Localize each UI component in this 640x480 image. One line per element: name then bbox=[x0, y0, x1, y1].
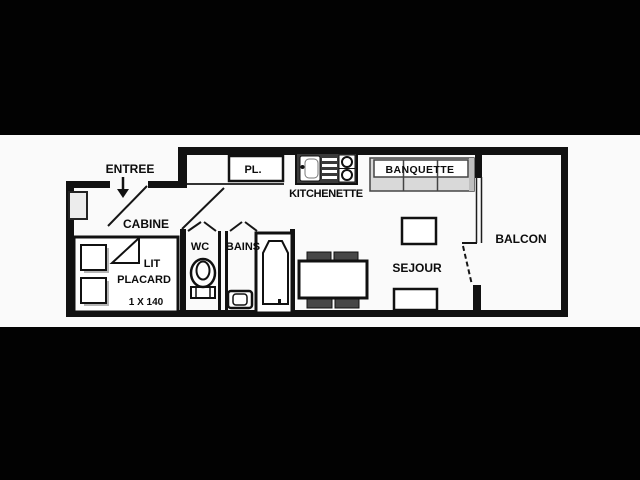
toilet-icon bbox=[191, 259, 215, 298]
drainer-stripe bbox=[322, 176, 337, 179]
hall-ledge-line bbox=[187, 183, 284, 185]
kitchenette-unit bbox=[296, 153, 357, 184]
drainer-stripe bbox=[322, 164, 337, 167]
bathtub-inner bbox=[263, 241, 288, 304]
kitchen-faucet bbox=[301, 165, 305, 169]
wall-cabine-wc bbox=[180, 229, 186, 310]
wall-wc-bains-left bbox=[218, 231, 221, 310]
label-placard-bed: PLACARD bbox=[117, 274, 171, 286]
wall-entry-right bbox=[148, 181, 187, 188]
stove-burners-icon bbox=[342, 157, 352, 167]
toilet-seat bbox=[197, 262, 210, 280]
label-cabine: CABINE bbox=[123, 217, 169, 231]
washbasin-icon bbox=[228, 291, 252, 308]
banquette-arm bbox=[469, 158, 474, 191]
dining-table-icon bbox=[299, 261, 367, 298]
shelf-icon bbox=[81, 278, 106, 303]
floorplan-drawing: ENTREE CABINE WC BAINS KITCHENETTE SEJOU… bbox=[0, 0, 640, 480]
floorplan-page: ENTREE CABINE WC BAINS KITCHENETTE SEJOU… bbox=[0, 0, 640, 480]
label-kitchenette: KITCHENETTE bbox=[289, 188, 363, 200]
label-wc: WC bbox=[191, 241, 209, 253]
bathtub-drain bbox=[278, 299, 281, 303]
stove-burners-icon bbox=[342, 170, 352, 180]
side-table-top bbox=[402, 218, 436, 244]
wall-balcony-top bbox=[475, 155, 482, 178]
toilet-base bbox=[191, 287, 215, 298]
drainer-stripe bbox=[322, 170, 337, 173]
wall-right bbox=[561, 147, 568, 317]
label-bed-size: 1 X 140 bbox=[129, 297, 164, 308]
label-bains: BAINS bbox=[226, 241, 260, 253]
side-table-bottom bbox=[394, 289, 437, 310]
label-entree: ENTREE bbox=[106, 162, 155, 176]
shelf-icon bbox=[81, 245, 106, 270]
bathtub-icon bbox=[256, 233, 292, 313]
drainer-stripe bbox=[322, 158, 337, 161]
label-lit: LIT bbox=[144, 258, 161, 270]
wall-balcony-bottom bbox=[473, 285, 481, 312]
basin-inner bbox=[233, 294, 247, 305]
label-balcon: BALCON bbox=[495, 232, 546, 246]
label-banquette: BANQUETTE bbox=[386, 164, 455, 176]
wall-top bbox=[178, 147, 568, 155]
label-placard: PL. bbox=[244, 164, 261, 176]
label-sejour: SEJOUR bbox=[392, 261, 442, 275]
radiator-icon bbox=[69, 192, 87, 219]
